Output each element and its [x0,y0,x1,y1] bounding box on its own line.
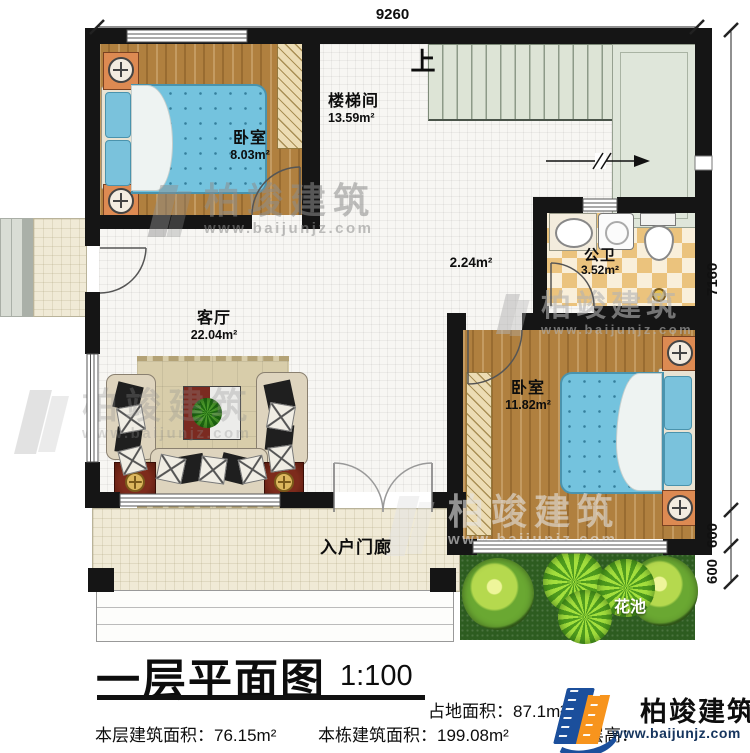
bedroom2-label: 卧室 11.82m² [476,380,580,413]
dim-top-label: 9260 [85,6,700,23]
stair-direction-arrow [546,153,650,169]
living-label: 客厅 22.04m² [164,310,264,343]
bathroom-area: 3.52m² [558,264,642,278]
dim-right-7160: 7160 [704,263,721,296]
living-name: 客厅 [164,310,264,328]
living-area: 22.04m² [164,328,264,342]
stairwell-area: 13.59m² [328,111,404,125]
stairwell-label: 楼梯间 13.59m² [328,93,404,126]
bedroom1-label: 卧室 8.03m² [198,130,302,163]
porch-label: 入户门廊 [295,538,417,558]
bathroom-name: 公卫 [558,247,642,264]
stair-up-label: 上 [406,48,440,77]
floor-plan-canvas: 柏竣建筑www.baijunjz.com 柏竣建筑www.baijunjz.co… [0,0,750,753]
bedroom1-area: 8.03m² [198,148,302,162]
stairwell-name: 楼梯间 [328,93,404,111]
bedroom2-area: 11.82m² [476,398,580,412]
bedroom1-name: 卧室 [198,130,302,148]
bathroom-label: 公卫 3.52m² [558,247,642,278]
dim-right-600-lower: 600 [704,559,721,584]
flowerbed-label: 花池 [596,599,664,617]
corridor-area-label: 2.24m² [433,255,509,271]
bedroom2-name: 卧室 [476,380,580,398]
dim-right-600-upper: 600 [704,523,721,548]
